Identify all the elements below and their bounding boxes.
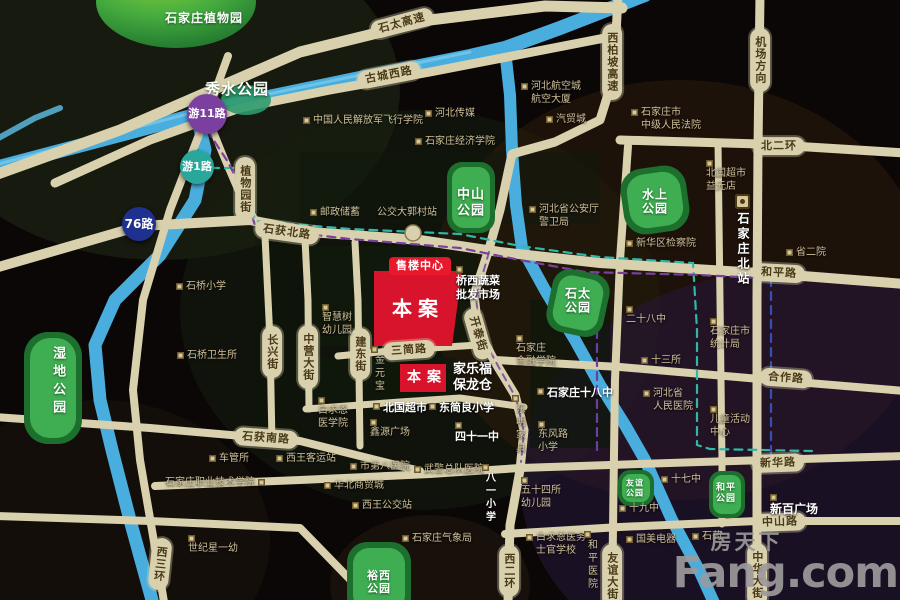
poi-marker-icon (176, 283, 183, 290)
label-text: 石家庄十八中 (547, 386, 613, 400)
poi-marker-icon (310, 209, 317, 216)
poi-marker-icon (177, 352, 184, 359)
road-zhongying-ave: 中营大街 (298, 325, 318, 389)
label-text: 本案 (401, 369, 447, 387)
road-jiandong-st: 建东街 (350, 328, 370, 380)
poi-label: 石家庄金融学院 (516, 333, 556, 368)
label-text: 石太公园 (565, 287, 591, 316)
poi-label: 白求恩医务士官学校 (526, 532, 586, 557)
poi-label: 市第八医院 (350, 461, 410, 474)
poi-label: 车管所 (209, 453, 249, 466)
bus-route-you1: 游1路 (180, 150, 214, 184)
poi-marker-icon (425, 110, 432, 117)
label-text: 新华路 (760, 456, 796, 471)
train-station-icon (735, 194, 750, 209)
label-text: 白求恩医学院 (318, 405, 348, 430)
poi-marker-icon (537, 388, 544, 395)
fang-watermark-english: Fang.com (673, 553, 898, 594)
poi-marker-icon (526, 534, 533, 541)
poi-label: 石家庄市中级人民法院 (631, 107, 701, 132)
project-label-south: 本案 (401, 369, 447, 387)
label-text: 友谊大街 (605, 552, 619, 600)
poi-label: 十三所 (641, 355, 681, 368)
poi-marker-icon (538, 421, 545, 428)
label-text: 和平医院 (584, 539, 597, 591)
label-text: 十七中 (671, 474, 701, 487)
poi-marker-icon (370, 419, 377, 426)
label-text: 河北传媒 (435, 108, 475, 121)
label-text: 市第八医院 (360, 461, 410, 474)
poi-marker-icon (706, 160, 713, 167)
poi-marker-icon (529, 206, 536, 213)
poi-label: 十七中 (661, 474, 701, 487)
poi-marker-icon (641, 357, 648, 364)
label-text: 北二环 (761, 139, 797, 153)
label-text: 二十八中 (626, 314, 666, 327)
label-text: 十三所 (651, 355, 681, 368)
poi-label-bold: 北国超市 (373, 401, 427, 415)
poi-label: 金元宝 (371, 344, 384, 393)
poi-label-bold: 东简良小学 (429, 401, 494, 415)
poi-label: 白求恩医学院 (318, 395, 348, 430)
poi-marker-icon (415, 138, 422, 145)
label-text: 家乐福保龙仓 (453, 362, 492, 395)
poi-label: 华北商贸城 (324, 480, 384, 493)
project-label-main: 本案 (386, 297, 444, 322)
label-text: 合作路 (768, 370, 805, 386)
sales-center-label: 售楼中心 (389, 257, 451, 275)
poi-marker-icon (786, 249, 793, 256)
road-hezuo: 合作路 (759, 367, 812, 388)
label-text: 武警总队医院 (424, 464, 484, 477)
label-text: 石家庄北站 (735, 212, 750, 287)
label-text: 本案 (386, 297, 444, 322)
label-text: 公交大郭村站 (377, 207, 437, 220)
label-text: 友谊公园 (626, 478, 644, 497)
poi-marker-icon (188, 535, 195, 542)
poi-marker-icon (303, 117, 310, 124)
label-text: 八一小学 (482, 472, 495, 524)
poi-label: 世纪星一幼 (188, 533, 238, 556)
poi-label-bold: 四十一中 (455, 420, 499, 444)
label-text: 四十一中 (455, 430, 499, 444)
poi-label: 石家庄气象局 (402, 533, 472, 546)
label-text: 石获南路 (242, 429, 291, 446)
label-text: 桥西蔬菜批发市场 (456, 274, 500, 302)
poi-label: 国美电器 (626, 534, 676, 547)
label-text: 石家庄市中级人民法院 (641, 107, 701, 132)
poi-marker-icon (521, 477, 528, 484)
poi-marker-icon (324, 482, 331, 489)
poi-marker-icon (770, 494, 777, 501)
poi-label: 汽贸城 (546, 114, 586, 127)
label-text: 中国人民解放军飞行学院 (313, 115, 423, 128)
label-text: 河北省人民医院 (653, 388, 693, 413)
label-text: 五十四所幼儿园 (521, 485, 561, 510)
road-zhiwuyuan-st: 植物园街 (235, 157, 255, 221)
park-shidi: 湿地公园 (49, 346, 65, 418)
label-text: 省二院 (796, 247, 826, 260)
label-text: 东风路小学 (538, 429, 568, 454)
road-xinhua: 新华路 (752, 453, 805, 473)
poi-label: 河北传媒 (425, 108, 475, 121)
label-text: 西二环 (502, 553, 516, 589)
label-text: 建东街 (353, 336, 367, 372)
fang-watermark: 房天下 Fang.com (673, 533, 898, 594)
poi-marker-icon (626, 240, 633, 247)
xinbai-plaza: 新百广场 (770, 492, 818, 517)
poi-label: 石桥卫生所 (177, 350, 237, 363)
poi-label: 鑫源广场 (370, 417, 410, 440)
poi-label: 邮政储蓄 (310, 207, 360, 220)
poi-marker-icon (631, 109, 638, 116)
location-map: 石太高速古城西路西柏坡高速机场方向北二环石获北路和平路合作路新华路中山路三简路开… (0, 0, 900, 600)
label-text: 世纪星一幼 (188, 543, 238, 556)
label-text: 邮政储蓄 (320, 207, 360, 220)
label-text: 石桥小学 (186, 281, 226, 294)
bus-route-76: 76路 (122, 207, 156, 241)
poi-marker-icon (276, 455, 283, 462)
label-text: 石桥卫生所 (187, 350, 237, 363)
poi-marker-icon (209, 455, 216, 462)
label-text: 国美电器 (636, 534, 676, 547)
label-text: 游1路 (182, 160, 212, 174)
road-north-2nd-ring: 北二环 (753, 137, 805, 155)
poi-marker-icon (516, 335, 523, 342)
poi-marker-icon (619, 505, 626, 512)
road-changxing-st: 长兴街 (262, 326, 282, 378)
poi-marker-icon (512, 395, 519, 402)
label-text: 长兴街 (265, 334, 279, 370)
label-text: 售楼中心 (396, 259, 444, 273)
poi-label: 省二院 (786, 247, 826, 260)
poi-label: 东明家具 (512, 393, 525, 455)
label-text: 新华区检察院 (636, 238, 696, 251)
road-airport-direction: 机场方向 (750, 28, 770, 92)
label-text: 西三环 (151, 545, 168, 582)
poi-label: 河北航空城航空大厦 (521, 81, 581, 106)
label-text: 东简良小学 (439, 401, 494, 415)
poi-marker-icon (482, 464, 489, 471)
label-text: 湿地公园 (49, 346, 65, 418)
road-youyi-ave: 友谊大街 (602, 544, 622, 600)
label-text: 智慧树幼儿园 (322, 312, 352, 337)
poi-marker-icon (456, 266, 463, 273)
label-text: 三简路 (391, 342, 428, 358)
poi-label: 五十四所幼儿园 (521, 475, 561, 510)
park-botanical-garden: 石家庄植物园 (165, 11, 243, 25)
poi-label: 公交大郭村站 (377, 207, 437, 220)
poi-label: 河北省公安厅警卫局 (529, 204, 599, 229)
poi-label-bold: 石家庄十八中 (537, 386, 613, 400)
poi-marker-icon (373, 403, 380, 410)
label-text: 石家庄职业技术学院 (165, 477, 255, 490)
label-text: 西柏坡高速 (605, 32, 619, 92)
poi-label: 石桥小学 (176, 281, 226, 294)
poi-marker-icon (455, 422, 462, 429)
label-text: 机场方向 (753, 36, 767, 84)
label-text: 和平公园 (716, 483, 736, 505)
poi-marker-icon (322, 304, 329, 311)
road-heping: 和平路 (753, 263, 806, 283)
road-sanjian: 三简路 (382, 339, 435, 360)
poi-label: 十九中 (619, 503, 659, 516)
label-text: 白求恩医务士官学校 (536, 532, 586, 557)
label-text: 金元宝 (371, 354, 384, 393)
poi-label: 二十八中 (626, 304, 666, 327)
poi-label: 河北省人民医院 (643, 388, 693, 413)
label-text: 游11路 (188, 107, 225, 121)
label-text: 十九中 (629, 503, 659, 516)
label-text: 河北航空城航空大厦 (531, 81, 581, 106)
poi-label: 西王客运站 (276, 453, 336, 466)
label-text: 和平路 (761, 265, 798, 281)
poi-marker-icon (402, 535, 409, 542)
poi-marker-icon (710, 318, 717, 325)
park-shitai: 石太公园 (565, 287, 591, 316)
label-text: 鑫源广场 (370, 427, 410, 440)
label-text: 西王公交站 (362, 500, 412, 513)
poi-label: 北国超市益元店 (706, 158, 746, 193)
label-text: 新百广场 (770, 502, 818, 517)
label-text: 石家庄经济学院 (425, 136, 495, 149)
market-qiaoxi: 桥西蔬菜批发市场 (456, 264, 500, 302)
poi-marker-icon (626, 536, 633, 543)
park-youyi: 友谊公园 (626, 478, 644, 497)
label-text: 76路 (125, 217, 154, 232)
park-yuxi: 裕西公园 (367, 569, 391, 595)
poi-marker-icon (643, 390, 650, 397)
poi-label: 和平医院 (584, 529, 597, 591)
poi-marker-icon (710, 406, 717, 413)
carrefour: 家乐福保龙仓 (453, 362, 492, 395)
poi-label: 儿童活动中心 (710, 404, 750, 439)
park-heping: 和平公园 (716, 483, 736, 505)
label-text: 石家庄气象局 (412, 533, 472, 546)
poi-marker-icon (546, 116, 553, 123)
road-xibaipo-expwy: 西柏坡高速 (602, 24, 622, 100)
label-text: 河北省公安厅警卫局 (539, 204, 599, 229)
poi-label: 中国人民解放军飞行学院 (303, 115, 423, 128)
label-text: 中营大街 (301, 333, 315, 381)
park-zhongshan: 中山公园 (457, 187, 485, 218)
poi-label: 石家庄经济学院 (415, 136, 495, 149)
label-text: 裕西公园 (367, 569, 391, 595)
shijiazhuang-north-station: 石家庄北站 (735, 194, 750, 287)
poi-marker-icon (521, 83, 528, 90)
bus-stop-daguocun (405, 225, 421, 241)
poi-marker-icon (661, 476, 668, 483)
road-west-2nd-ring: 西二环 (499, 545, 519, 597)
poi-label: 西王公交站 (352, 500, 412, 513)
label-text: 石家庄金融学院 (516, 343, 556, 368)
label-text: 西王客运站 (286, 453, 336, 466)
label-text: 儿童活动中心 (710, 414, 750, 439)
poi-marker-icon (414, 466, 421, 473)
label-text: 水上公园 (642, 188, 668, 217)
label-text: 车管所 (219, 453, 249, 466)
poi-marker-icon (429, 403, 436, 410)
label-text: 北国超市 (383, 401, 427, 415)
label-text: 华北商贸城 (334, 480, 384, 493)
label-text: 汽贸城 (556, 114, 586, 127)
poi-label: 东风路小学 (538, 419, 568, 454)
poi-label: 新华区检察院 (626, 238, 696, 251)
poi-marker-icon (371, 346, 378, 353)
poi-marker-icon (258, 479, 265, 486)
poi-marker-icon (318, 397, 325, 404)
label-text: 北国超市益元店 (706, 168, 746, 193)
poi-label-bold: 八一小学 (482, 462, 495, 524)
park-shuishang: 水上公园 (642, 188, 668, 217)
poi-marker-icon (352, 502, 359, 509)
poi-label: 武警总队医院 (414, 464, 484, 477)
poi-label: 石家庄职业技术学院 (165, 477, 265, 490)
poi-label: 石家庄市统计局 (710, 316, 750, 351)
label-text: 石家庄植物园 (165, 11, 243, 25)
bus-route-you11: 游11路 (187, 94, 227, 134)
poi-label: 智慧树幼儿园 (322, 302, 352, 337)
label-text: 石家庄市统计局 (710, 326, 750, 351)
label-text: 中山公园 (457, 187, 485, 218)
poi-marker-icon (584, 531, 591, 538)
poi-marker-icon (626, 306, 633, 313)
poi-marker-icon (350, 463, 357, 470)
label-text: 东明家具 (512, 403, 525, 455)
label-text: 植物园街 (238, 165, 252, 213)
